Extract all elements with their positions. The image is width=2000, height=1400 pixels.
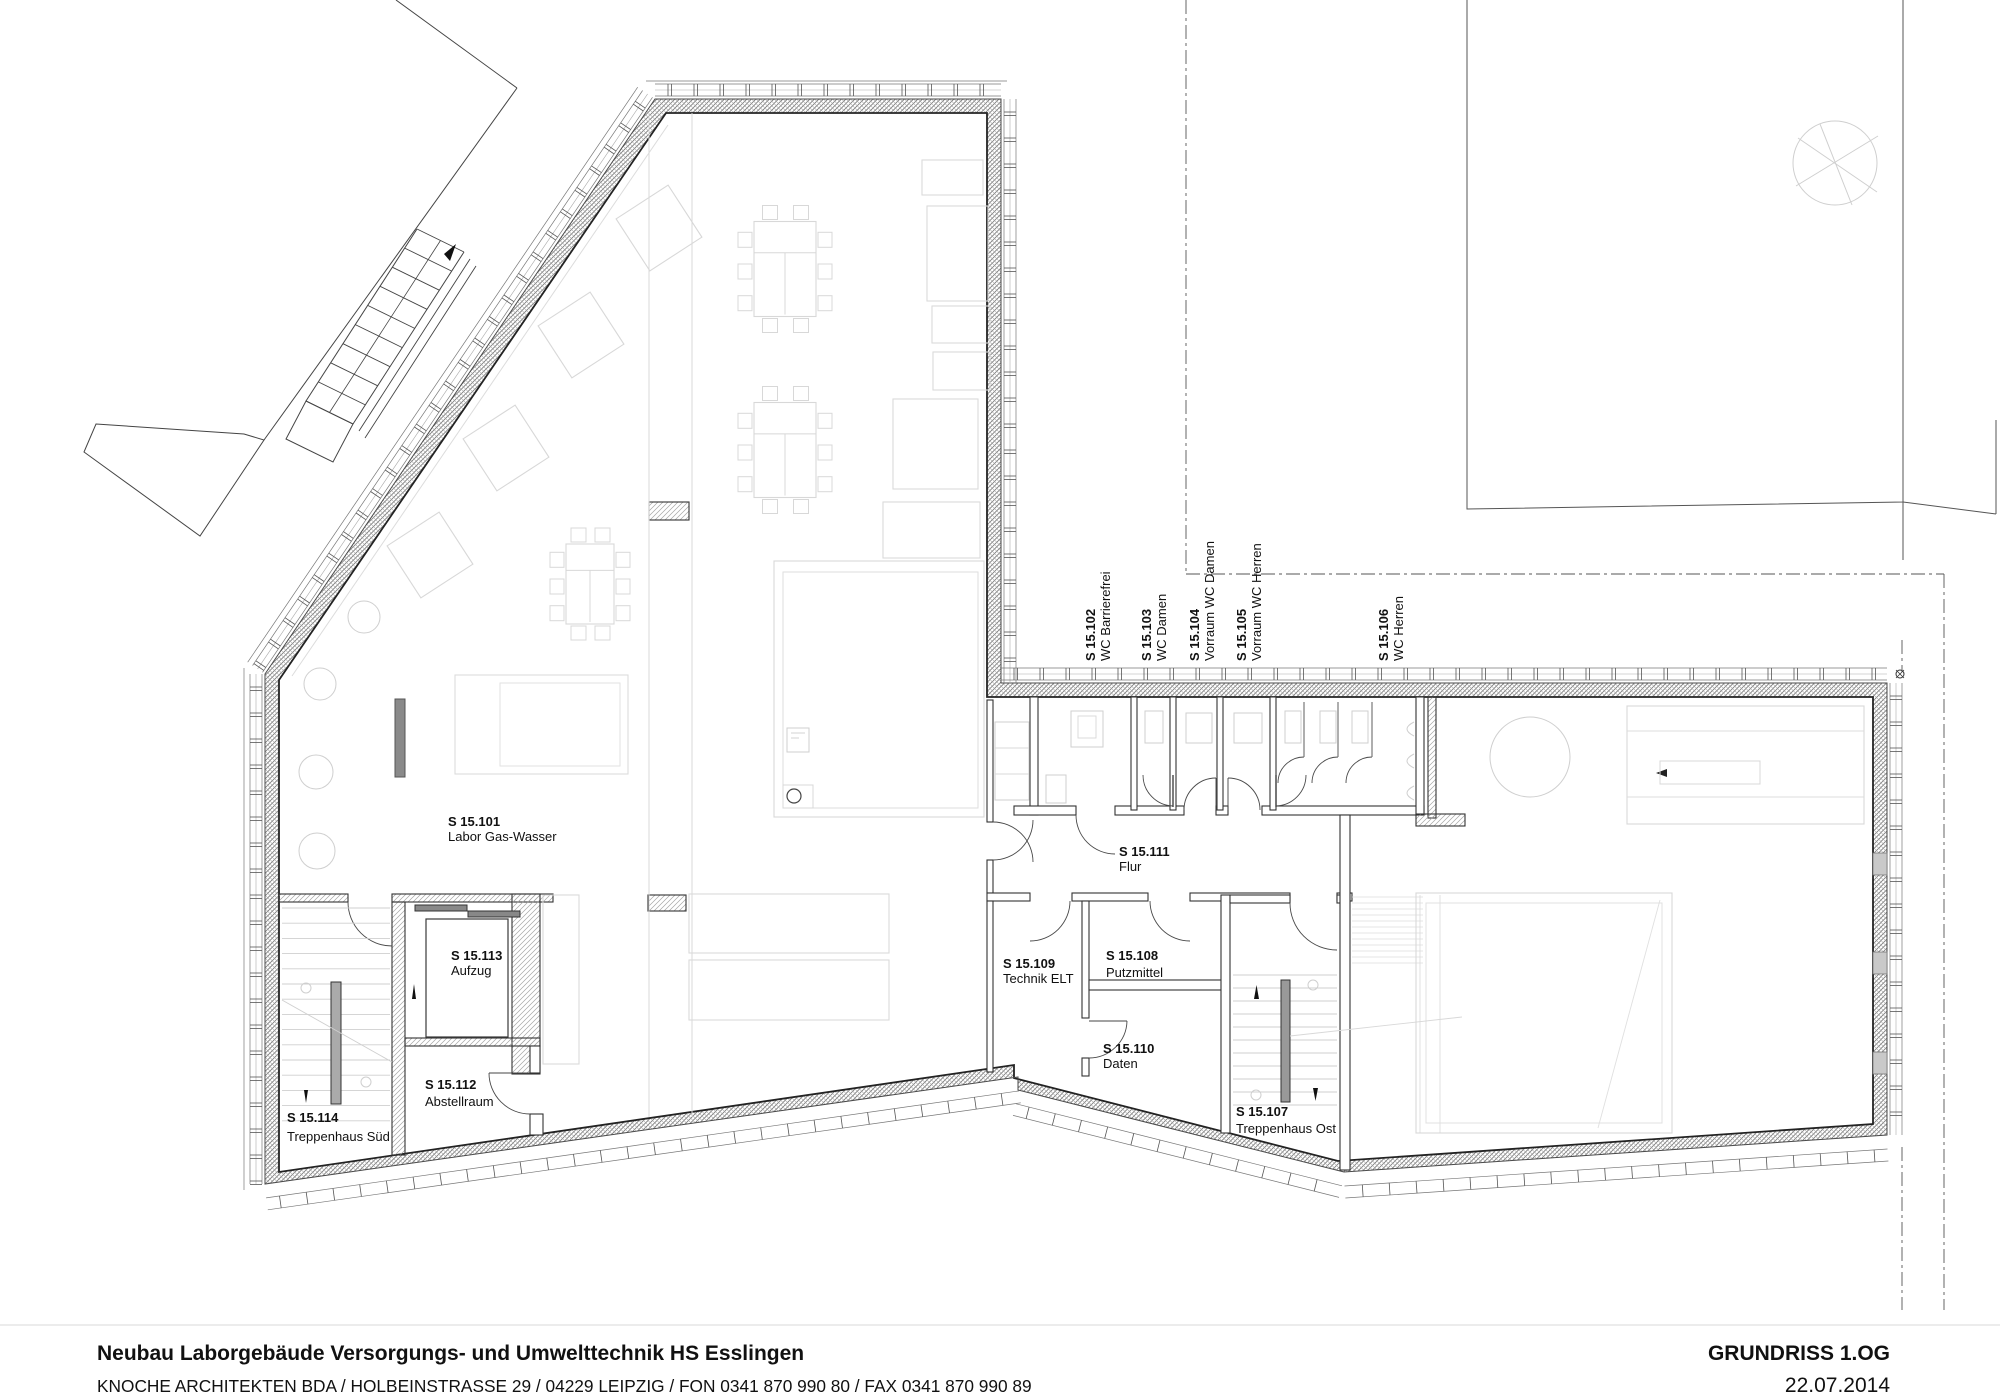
svg-text:S 15.107: S 15.107 [1236,1104,1288,1119]
svg-text:WC Herren: WC Herren [1391,596,1406,661]
svg-text:S 15.106: S 15.106 [1376,609,1391,661]
svg-text:S 15.112: S 15.112 [425,1077,476,1092]
svg-text:WC Damen: WC Damen [1154,594,1169,661]
svg-text:WC Barrierefrei: WC Barrierefrei [1098,571,1113,661]
svg-text:Labor Gas-Wasser: Labor Gas-Wasser [448,829,557,844]
svg-text:S 15.111: S 15.111 [1119,844,1170,859]
svg-text:Vorraum WC Herren: Vorraum WC Herren [1249,543,1264,661]
svg-text:GRUNDRISS 1.OG: GRUNDRISS 1.OG [1708,1342,1890,1365]
svg-text:S 15.114: S 15.114 [287,1110,339,1125]
svg-text:S 15.109: S 15.109 [1003,956,1055,971]
svg-text:Aufzug: Aufzug [451,963,491,978]
svg-text:Abstellraum: Abstellraum [425,1094,494,1109]
svg-text:Putzmittel: Putzmittel [1106,965,1163,980]
svg-text:S 15.108: S 15.108 [1106,948,1158,963]
svg-text:Treppenhaus Süd: Treppenhaus Süd [287,1129,390,1144]
svg-text:Technik ELT: Technik ELT [1003,971,1074,986]
svg-text:S 15.105: S 15.105 [1234,609,1249,661]
svg-text:S 15.110: S 15.110 [1103,1041,1154,1056]
svg-text:Flur: Flur [1119,859,1142,874]
svg-text:Treppenhaus Ost: Treppenhaus Ost [1236,1121,1336,1136]
svg-text:S 15.102: S 15.102 [1083,609,1098,661]
svg-text:Neubau Laborgebäude Versorgung: Neubau Laborgebäude Versorgungs- und Umw… [97,1342,804,1365]
svg-text:S 15.101: S 15.101 [448,814,500,829]
svg-text:S 15.104: S 15.104 [1187,608,1202,661]
svg-text:KNOCHE ARCHITEKTEN BDA / HOLBE: KNOCHE ARCHITEKTEN BDA / HOLBEINSTRASSE … [97,1376,1032,1396]
svg-text:22.07.2014: 22.07.2014 [1785,1374,1890,1397]
svg-text:S 15.113: S 15.113 [451,948,502,963]
svg-text:S 15.103: S 15.103 [1139,609,1154,661]
svg-text:Daten: Daten [1103,1056,1138,1071]
svg-text:Vorraum WC Damen: Vorraum WC Damen [1202,541,1217,661]
